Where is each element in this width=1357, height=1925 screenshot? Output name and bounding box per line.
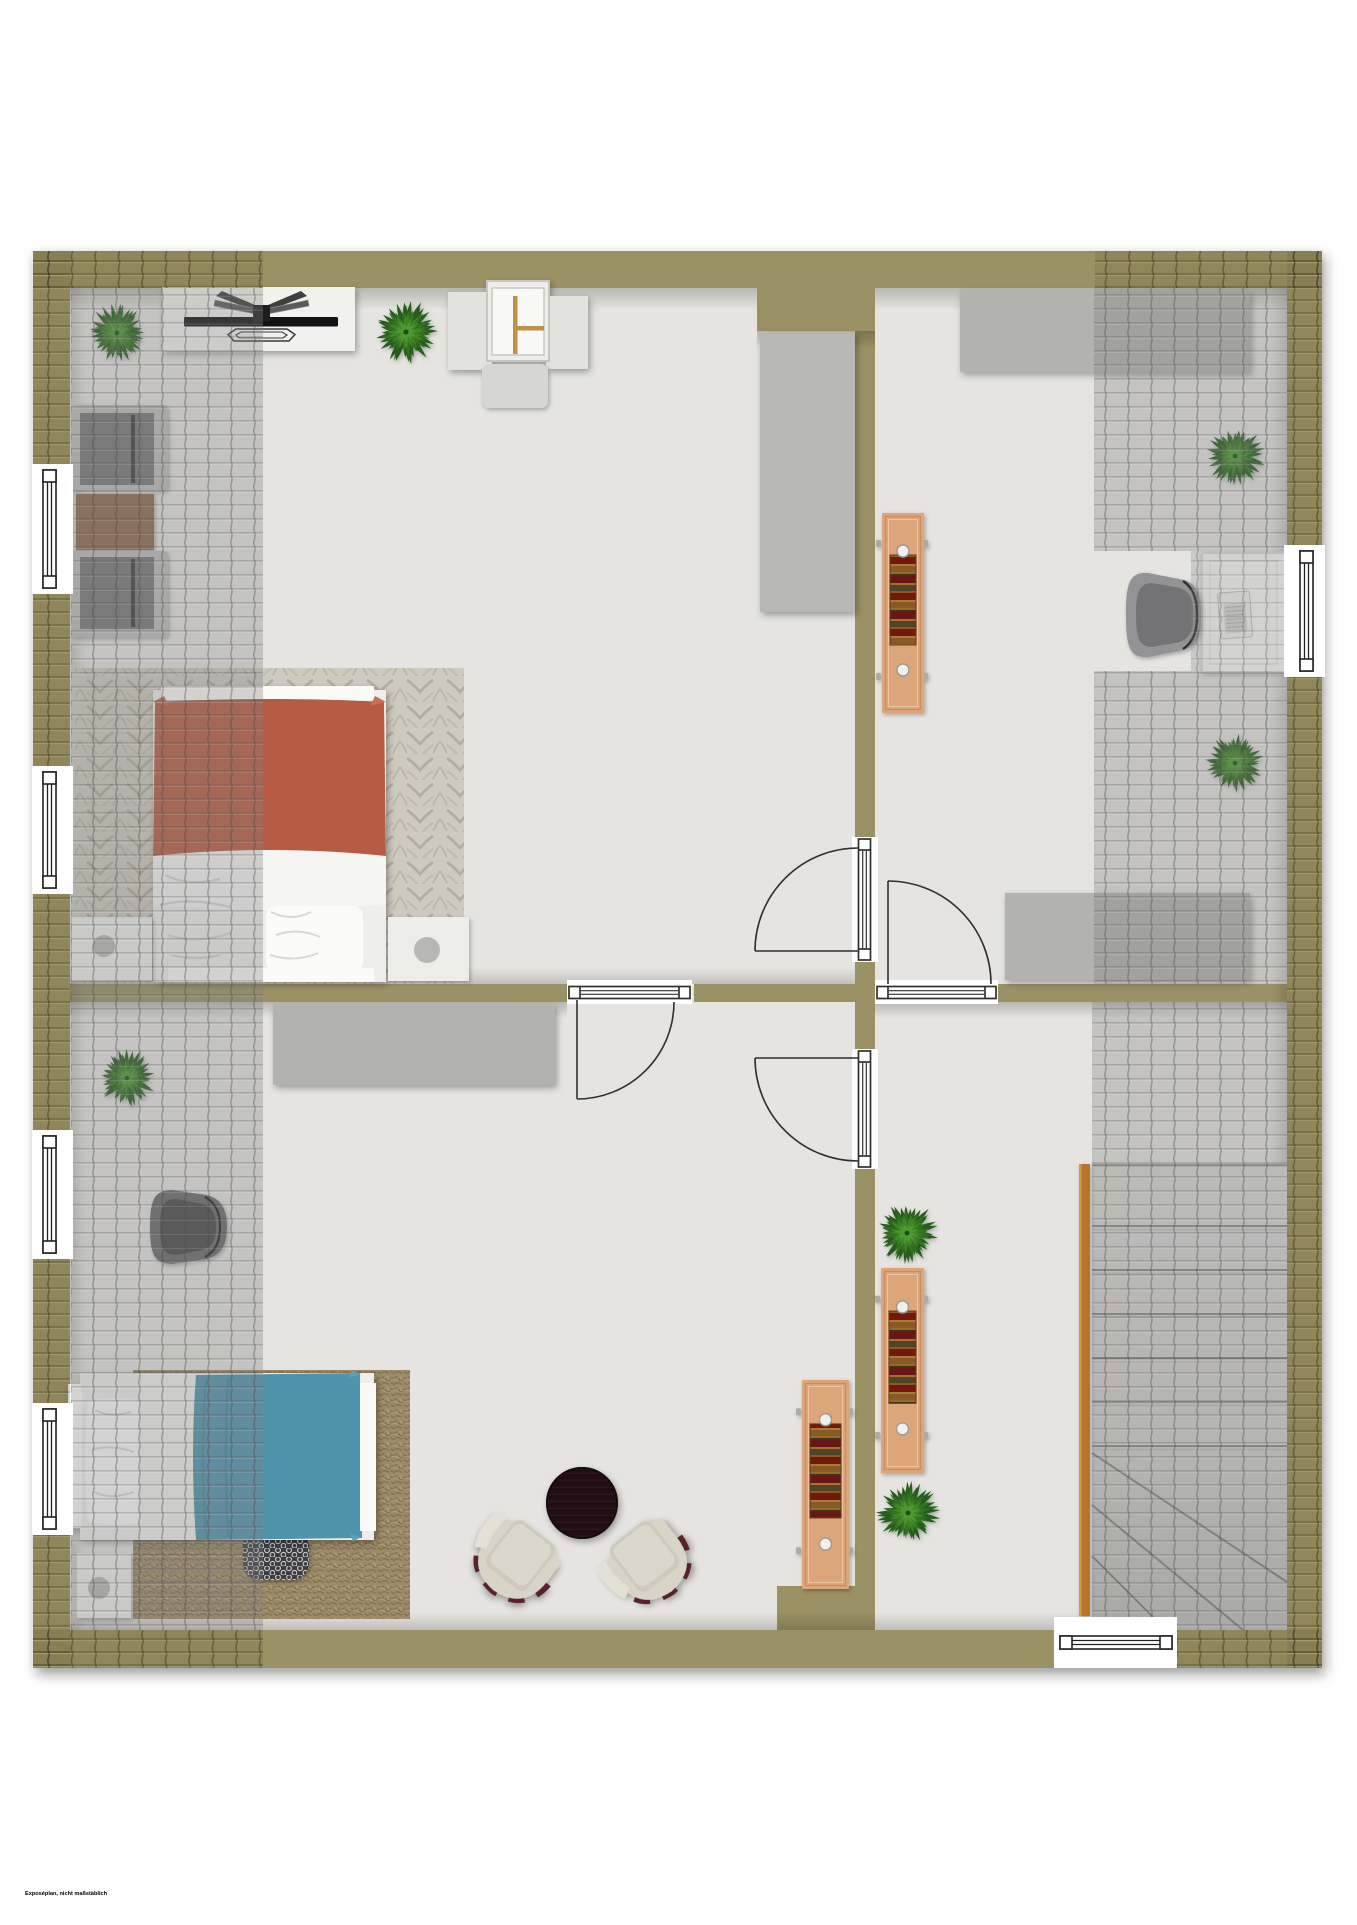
svg-text:Exposéplan, nicht maßstäblich: Exposéplan, nicht maßstäblich: [25, 1891, 108, 1897]
